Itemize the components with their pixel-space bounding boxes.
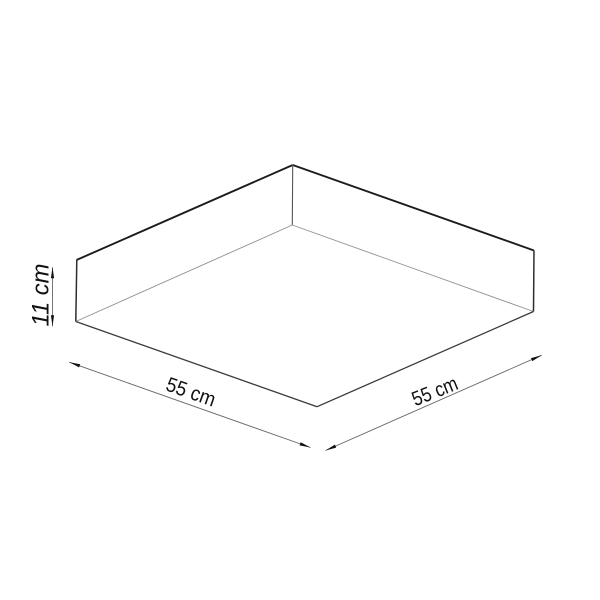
svg-text:11 cm: 11 cm [28, 264, 55, 327]
